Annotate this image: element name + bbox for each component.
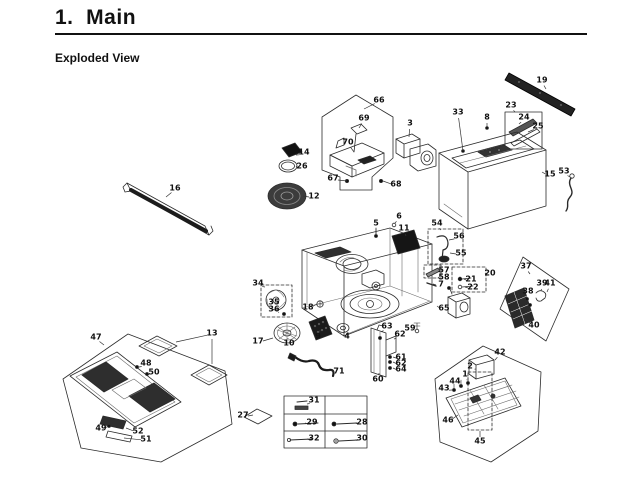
callout-4: 4 — [344, 332, 350, 341]
callout-12: 12 — [308, 192, 319, 201]
callout-62: 62 — [394, 330, 405, 339]
leader-line — [544, 86, 546, 89]
callout-40: 40 — [528, 321, 540, 330]
callout-42: 42 — [494, 348, 505, 357]
callout-18: 18 — [302, 303, 314, 312]
callout-49: 49 — [95, 424, 107, 433]
callout-32: 32 — [308, 434, 319, 443]
callout-56: 56 — [453, 232, 465, 241]
callout-5: 5 — [373, 219, 379, 228]
leader-line — [176, 335, 207, 342]
callout-50: 50 — [148, 368, 160, 377]
exploded-view-diagram: 6669703676814261216192324253381553561154… — [0, 0, 640, 480]
callout-20: 20 — [484, 269, 496, 278]
callout-13: 13 — [206, 329, 217, 338]
leader-line — [248, 415, 253, 416]
callout-19: 19 — [536, 76, 548, 85]
leader-line — [459, 118, 463, 151]
leader-line — [100, 342, 105, 346]
callout-45: 45 — [474, 437, 486, 446]
callout-29: 29 — [306, 418, 318, 427]
leader-line — [528, 272, 530, 275]
hardware-table — [284, 396, 367, 448]
callout-60: 60 — [372, 375, 384, 384]
callout-53: 53 — [558, 167, 569, 176]
callout-65: 65 — [438, 304, 450, 313]
leader-line — [395, 221, 397, 223]
callout-17: 17 — [252, 337, 263, 346]
callout-63: 63 — [381, 322, 392, 331]
callout-38: 38 — [522, 287, 534, 296]
air-duct-panel — [392, 230, 420, 254]
callout-11: 11 — [398, 224, 410, 233]
callout-66: 66 — [373, 96, 385, 105]
vent-grille-bar — [123, 183, 213, 235]
stud — [317, 301, 323, 307]
power-cord — [288, 353, 334, 376]
thermostat-cable — [566, 174, 574, 211]
callout-33: 33 — [452, 108, 463, 117]
leader-line — [547, 289, 548, 292]
callout-71: 71 — [333, 367, 345, 376]
callout-14: 14 — [298, 148, 310, 157]
callout-3: 3 — [407, 119, 413, 128]
leader-line — [166, 193, 172, 198]
callout-41: 41 — [544, 279, 556, 288]
callout-55: 55 — [455, 249, 467, 258]
callout-34: 34 — [252, 279, 264, 288]
callout-6: 6 — [396, 212, 402, 221]
page-title: 1. Main — [55, 6, 587, 35]
leader-line — [409, 129, 410, 137]
leader-line — [495, 357, 497, 360]
callout-27: 27 — [237, 411, 248, 420]
callout-37: 37 — [520, 262, 531, 271]
callout-46: 46 — [442, 416, 454, 425]
callout-47: 47 — [90, 333, 101, 342]
leader-line — [351, 147, 354, 152]
callout-15: 15 — [544, 170, 556, 179]
cabinet-wrap — [439, 127, 546, 229]
callout-44: 44 — [449, 377, 461, 386]
callout-2: 2 — [467, 362, 473, 371]
callout-9: 9 — [315, 332, 321, 341]
callout-36: 36 — [268, 305, 280, 314]
callout-8: 8 — [484, 113, 490, 122]
callout-43: 43 — [438, 384, 449, 393]
callout-30: 30 — [356, 434, 368, 443]
section-subtitle: Exploded View — [55, 51, 587, 65]
callout-1: 1 — [462, 370, 468, 379]
callout-54: 54 — [431, 219, 443, 228]
spacer-69 — [351, 124, 367, 134]
power-pcb-box — [435, 346, 541, 462]
callout-28: 28 — [356, 418, 368, 427]
callout-64: 64 — [395, 365, 407, 374]
callout-59: 59 — [404, 324, 416, 333]
leader-line — [263, 338, 273, 341]
leader-line — [124, 438, 141, 440]
callout-23: 23 — [505, 101, 516, 110]
page-header: 1. Main Exploded View — [55, 6, 587, 65]
manual-page: 1. Main Exploded View — [0, 0, 640, 480]
callout-16: 16 — [169, 184, 181, 193]
leader-line — [519, 122, 521, 124]
callout-68: 68 — [390, 180, 402, 189]
callout-31: 31 — [308, 396, 320, 405]
callout-70: 70 — [342, 138, 354, 147]
callout-22: 22 — [467, 283, 478, 292]
callout-7: 7 — [438, 280, 444, 289]
callout-10: 10 — [283, 339, 295, 348]
magnetron-motor — [396, 134, 436, 171]
callout-48: 48 — [140, 359, 152, 368]
callout-51: 51 — [140, 435, 152, 444]
callout-24: 24 — [518, 113, 530, 122]
callout-67: 67 — [327, 174, 338, 183]
callout-69: 69 — [358, 114, 370, 123]
callout-26: 26 — [296, 162, 308, 171]
callout-25: 25 — [532, 122, 544, 131]
